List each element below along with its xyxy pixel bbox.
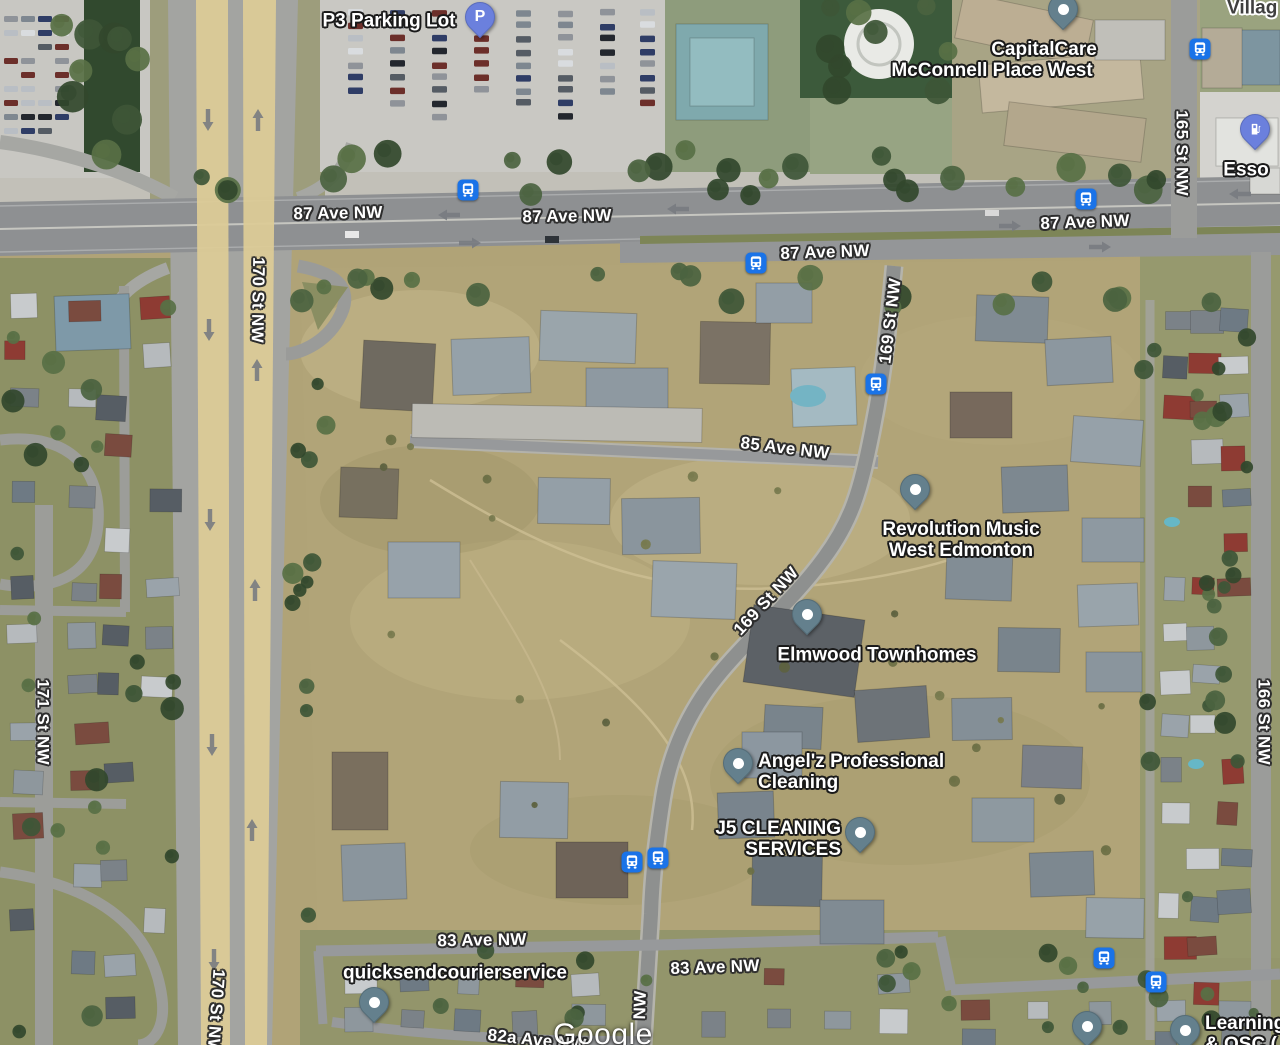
pin-dot — [910, 484, 921, 495]
place-label-elmwood-townhomes[interactable]: Elmwood Townhomes — [777, 645, 976, 666]
pin-dot — [802, 609, 813, 620]
pin-dot — [733, 758, 744, 769]
google-watermark: Google — [553, 1018, 653, 1045]
gas-pump-icon — [1240, 114, 1270, 144]
road-label-170-st-nw: 170 St NW — [205, 969, 228, 1045]
bus-stop-icon[interactable] — [1076, 189, 1097, 210]
place-label-line: Angel'z Professional — [758, 751, 944, 772]
pin-dot — [369, 997, 380, 1008]
place-label-line: McConnell Place West — [891, 60, 1092, 81]
pin-dot — [1180, 1025, 1191, 1036]
bus-stop-icon[interactable] — [458, 180, 479, 201]
place-label-line: J5 CLEANING — [715, 818, 841, 839]
place-label-j5-cleaning-services[interactable]: J5 CLEANINGSERVICES — [715, 818, 841, 860]
unlabeled-place-pin[interactable] — [1072, 1011, 1102, 1041]
place-label-line: CapitalCare — [943, 39, 1144, 60]
pin-dot — [1082, 1021, 1093, 1032]
road-label-169-st-nw: 169 St NW — [876, 277, 903, 364]
road-label-171-st-nw: 171 St NW — [35, 679, 52, 765]
bus-stop-icon[interactable] — [1190, 39, 1211, 60]
place-label-line: Esso — [1223, 160, 1268, 181]
revolution-music-pin[interactable] — [900, 474, 930, 504]
place-label-capitalcare-mcconnell-place-west[interactable]: CapitalCareMcConnell Place West — [891, 39, 1092, 81]
bus-stop-icon[interactable] — [746, 253, 767, 274]
bus-stop-icon[interactable] — [622, 852, 643, 873]
place-label-line: Villag — [1227, 0, 1277, 19]
map-canvas[interactable]: 87 Ave NW87 Ave NW87 Ave NW87 Ave NW85 A… — [0, 0, 1280, 1045]
pin-dot — [855, 827, 866, 838]
place-label-esso[interactable]: Esso — [1223, 160, 1268, 181]
p3-parking-pin[interactable]: P — [465, 2, 495, 32]
elmwood-townhomes-pin[interactable] — [792, 599, 822, 629]
bus-stop-icon[interactable] — [1146, 972, 1167, 993]
place-label-line: West Edmonton — [882, 540, 1039, 561]
place-label-quicksendcourierservice[interactable]: quicksendcourierservice — [343, 963, 567, 984]
place-label-line: Cleaning — [758, 772, 944, 793]
place-label-line: P3 Parking Lot — [322, 11, 455, 32]
bus-stop-icon[interactable] — [1094, 948, 1115, 969]
quicksendcourierservice-pin[interactable] — [359, 987, 389, 1017]
road-label-85-ave-nw: 85 Ave NW — [740, 434, 831, 462]
map-labels-layer: 87 Ave NW87 Ave NW87 Ave NW87 Ave NW85 A… — [0, 0, 1280, 1045]
place-label-line: quicksendcourierservice — [343, 963, 567, 984]
learning-osc-pin[interactable] — [1170, 1015, 1200, 1045]
place-label-p3-parking-lot[interactable]: P3 Parking Lot — [322, 11, 455, 32]
place-label-village-partial[interactable]: Villag — [1227, 0, 1277, 19]
road-label-nw: NW — [631, 990, 649, 1020]
place-label-line: & OSC ( — [1205, 1034, 1280, 1045]
road-label-83-ave-nw: 83 Ave NW — [437, 931, 527, 950]
bus-stop-icon[interactable] — [866, 374, 887, 395]
angelz-cleaning-pin[interactable] — [723, 748, 753, 778]
road-label-165-st-nw: 165 St NW — [1174, 110, 1191, 196]
road-label-87-ave-nw: 87 Ave NW — [293, 204, 383, 223]
place-label-revolution-music-west-edmonton[interactable]: Revolution MusicWest Edmonton — [882, 519, 1039, 561]
road-label-87-ave-nw: 87 Ave NW — [780, 242, 870, 262]
road-label-83-ave-nw: 83 Ave NW — [670, 957, 760, 977]
place-label-line: Learning — [1205, 1013, 1280, 1034]
esso-gas-station-pin[interactable] — [1240, 114, 1270, 144]
road-label-87-ave-nw: 87 Ave NW — [522, 207, 612, 226]
place-label-learning-osc[interactable]: Learning& OSC ( — [1205, 1013, 1280, 1045]
capitalcare-pin[interactable] — [1048, 0, 1078, 24]
road-label-87-ave-nw: 87 Ave NW — [1040, 212, 1130, 232]
road-label-169-st-nw: 169 St NW — [731, 564, 802, 638]
place-label-line: Revolution Music — [882, 519, 1039, 540]
pin-dot — [1058, 4, 1069, 15]
bus-stop-icon[interactable] — [648, 848, 669, 869]
place-label-angelz-professional-cleaning[interactable]: Angel'z ProfessionalCleaning — [758, 751, 944, 793]
road-label-170-st-nw: 170 St NW — [249, 257, 267, 343]
parking-icon: P — [465, 2, 495, 32]
place-label-line: SERVICES — [715, 839, 841, 860]
road-label-166-st-nw: 166 St NW — [1256, 679, 1273, 765]
place-label-line: Elmwood Townhomes — [777, 645, 976, 666]
j5-cleaning-pin[interactable] — [845, 817, 875, 847]
